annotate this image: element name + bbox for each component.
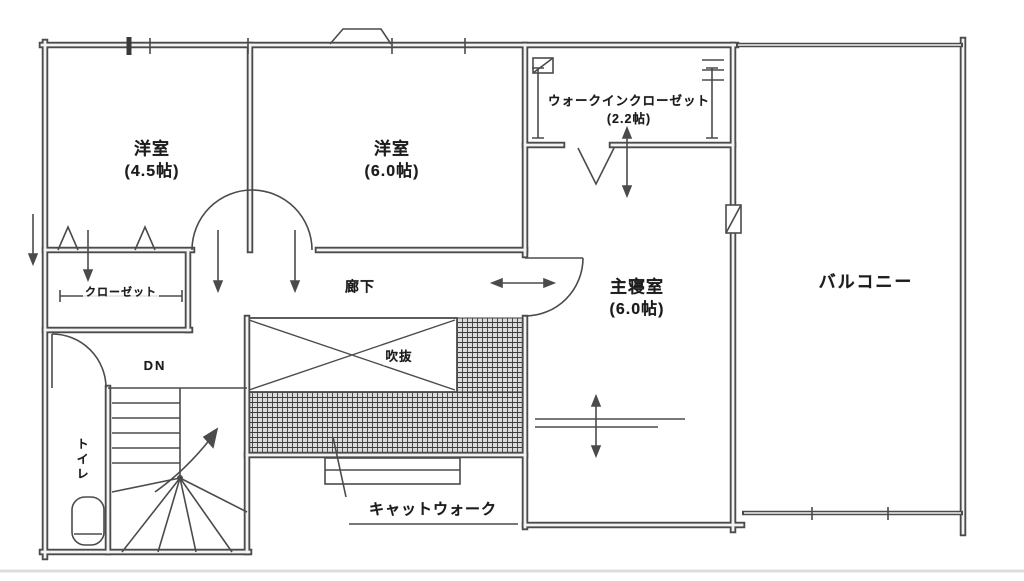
room-label-hallway: 廊下: [345, 278, 375, 297]
room-label-master-bedroom: 主寝室: [610, 277, 664, 300]
atrium-void-box: [247, 318, 457, 392]
room-label-wic: ウォークインクローゼット: [548, 94, 710, 110]
room-size-bedroom2: (6.0帖): [365, 161, 420, 183]
room-size-bedroom1: (4.5帖): [125, 161, 180, 183]
room-size-master-bedroom: (6.0帖): [610, 299, 665, 321]
room-size-wic: (2.2帖): [607, 112, 651, 128]
room-label-toilet: トイレ: [74, 438, 90, 483]
room-label-bedroom2: 洋室: [374, 139, 410, 162]
stairs-down-label: DN: [144, 357, 167, 375]
room-label-void: 吹抜: [383, 349, 414, 366]
room-label-closet: クローゼット: [83, 286, 159, 301]
catwalk-label: キャットウォーク: [369, 500, 497, 520]
room-label-balcony: バルコニー: [819, 272, 914, 295]
room-label-bedroom1: 洋室: [134, 139, 170, 162]
floorplan-page: 洋室 (4.5帖) 洋室 (6.0帖) ウォークインクローゼット (2.2帖) …: [0, 0, 1024, 581]
